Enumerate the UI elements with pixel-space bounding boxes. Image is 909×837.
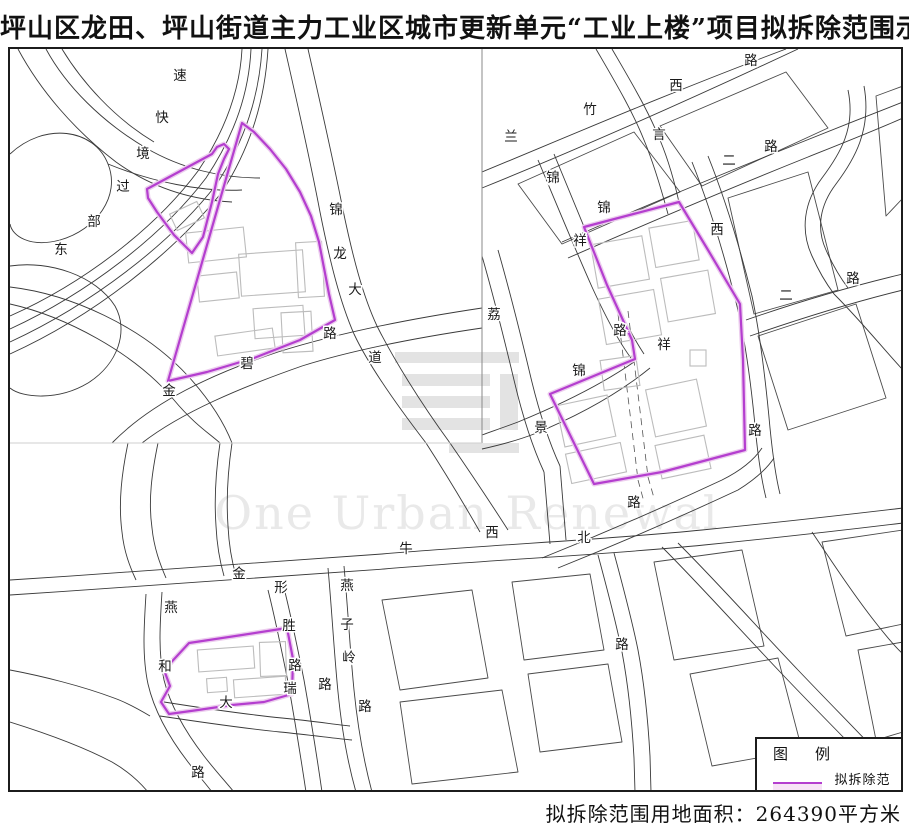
map-canvas: One Urban Renewal速快境过部东锦龙大道路碧金兰竹西路言二路锦祥锦… (10, 49, 901, 790)
road-label: 金 (232, 566, 246, 582)
road-label: 锦 (572, 363, 586, 379)
road-label: 金 (162, 383, 176, 399)
road-label: 锦 (546, 170, 560, 186)
road-label: 东 (54, 242, 68, 258)
page-title: 坪山区龙田、坪山街道主力工业区城市更新单元“工业上楼”项目拟拆除范围示意图 (0, 8, 909, 45)
road-label: 境 (136, 146, 150, 162)
road-label: 祥 (573, 233, 587, 249)
buildings-layer (170, 202, 716, 698)
road-label: 路 (744, 53, 758, 69)
page: { "title": "坪山区龙田、坪山街道主力工业区城市更新单元“工业上楼”项… (0, 0, 909, 837)
road-label: 路 (191, 765, 205, 781)
road-label: 路 (318, 677, 332, 693)
road-label: 燕 (340, 578, 354, 594)
road-label: 二 (722, 153, 736, 169)
road-label: 兰 (504, 129, 518, 145)
road-label: 牛 (399, 541, 413, 557)
road-label: 路 (748, 423, 762, 439)
road-label: 路 (288, 658, 302, 674)
road-label: 岭 (342, 650, 356, 666)
road-label: 龙 (333, 246, 347, 262)
road-label: 过 (116, 179, 130, 195)
road-label: 锦 (597, 200, 611, 216)
legend-title: 图 例 (773, 743, 901, 764)
legend-row: 拟拆除范围 (773, 769, 901, 792)
road-label: 景 (534, 420, 548, 436)
map-frame: One Urban Renewal速快境过部东锦龙大道路碧金兰竹西路言二路锦祥锦… (8, 47, 903, 792)
road-label: 言 (652, 127, 666, 143)
demolition-scope-swatch-icon (773, 782, 822, 793)
road-label: 竹 (583, 102, 597, 118)
road-label: 道 (368, 350, 382, 366)
road-label: 西 (710, 222, 724, 238)
road-label: 北 (577, 530, 591, 546)
footer-area-text: 拟拆除范围用地面积：264390平方米 (546, 798, 901, 827)
watermark-layer: One Urban Renewal (214, 352, 719, 540)
road-label: 西 (485, 525, 499, 541)
road-label: 大 (219, 695, 233, 711)
road-label: 锦 (329, 202, 343, 218)
road-label: 子 (340, 617, 354, 633)
road-label: 西 (669, 78, 683, 94)
road-label: 胜 (282, 618, 296, 634)
road-label: 荔 (487, 307, 501, 323)
road-label: 和 (158, 659, 172, 675)
road-label: 路 (846, 271, 860, 287)
road-label: 大 (348, 282, 362, 298)
road-label: 路 (764, 139, 778, 155)
road-label: 形 (274, 580, 288, 596)
road-label: 路 (615, 637, 629, 653)
road-label: 路 (613, 323, 627, 339)
road-label: 碧 (240, 356, 254, 372)
road-label: 路 (627, 495, 641, 511)
road-label: 快 (155, 110, 169, 126)
road-label: 燕 (164, 600, 178, 616)
road-label: 路 (323, 326, 337, 342)
road-label: 瑞 (283, 681, 297, 697)
road-label: 二 (779, 288, 793, 304)
road-label: 祥 (657, 337, 671, 353)
road-label: 路 (358, 699, 372, 715)
road-label: 部 (87, 214, 101, 230)
legend-box: 图 例 拟拆除范围 (755, 737, 901, 790)
legend-item-label: 拟拆除范围 (834, 769, 901, 792)
road-label: 速 (173, 68, 187, 84)
